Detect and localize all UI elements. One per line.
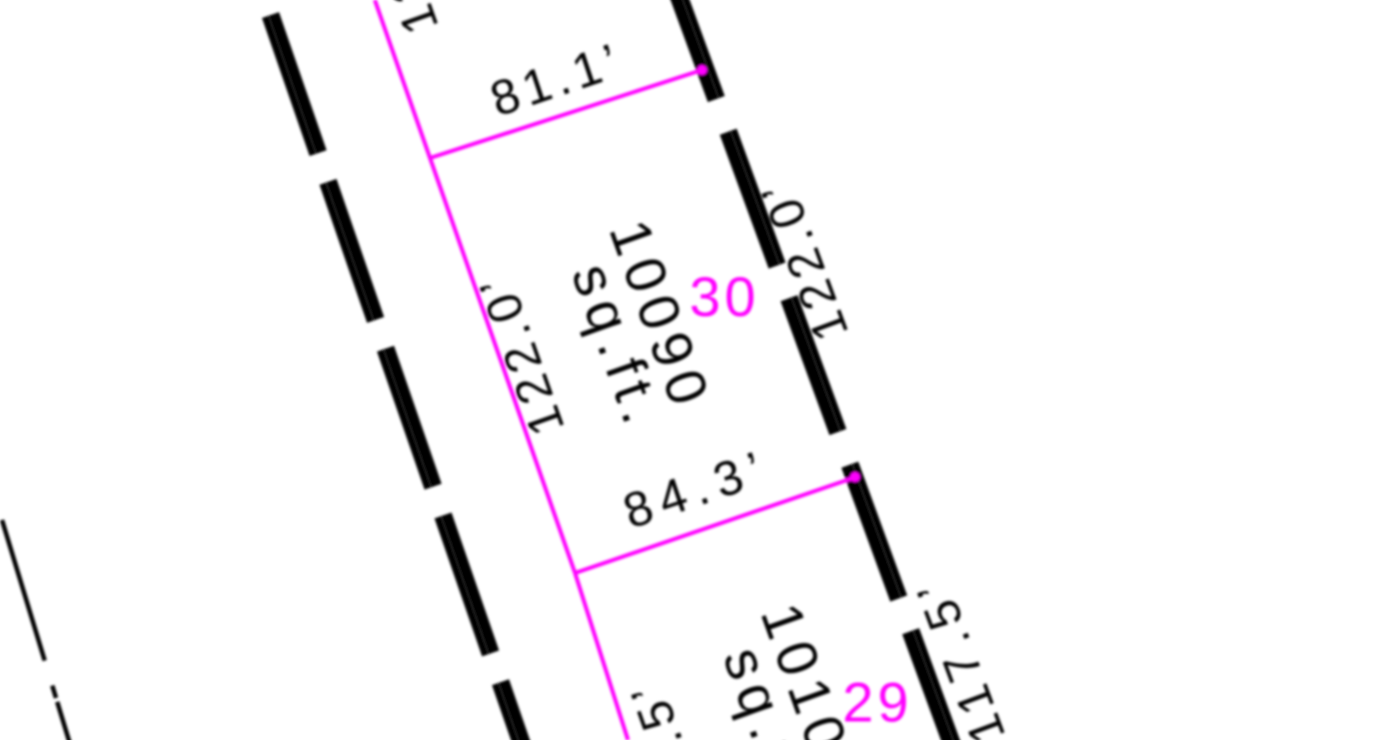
svg-text:117.5’: 117.5’ — [619, 672, 725, 740]
svg-text:122.0’: 122.0’ — [342, 0, 449, 41]
svg-text:30: 30 — [689, 265, 759, 328]
svg-text:29: 29 — [842, 671, 912, 734]
svg-text:84.3’: 84.3’ — [617, 440, 778, 540]
svg-text:81.1’: 81.1’ — [484, 33, 630, 127]
svg-text:122.0’: 122.0’ — [468, 264, 575, 442]
